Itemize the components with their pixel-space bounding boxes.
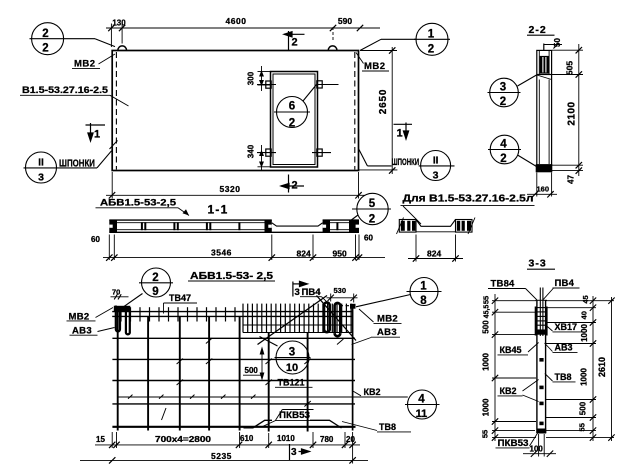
svg-text:2100: 2100 bbox=[567, 101, 578, 125]
svg-text:2: 2 bbox=[289, 118, 295, 130]
svg-text:Для В1.5-53.27.16-2.5л: Для В1.5-53.27.16-2.5л bbox=[403, 194, 534, 205]
svg-text:2: 2 bbox=[42, 43, 48, 55]
svg-text:1000: 1000 bbox=[482, 353, 491, 371]
svg-text:3: 3 bbox=[291, 447, 297, 458]
svg-text:3-3: 3-3 bbox=[529, 258, 547, 270]
svg-text:160: 160 bbox=[537, 185, 550, 194]
svg-text:2650: 2650 bbox=[378, 89, 389, 114]
svg-text:1000: 1000 bbox=[482, 398, 491, 416]
svg-text:ПКВ53: ПКВ53 bbox=[279, 410, 310, 420]
svg-text:11: 11 bbox=[416, 408, 428, 420]
svg-text:530: 530 bbox=[334, 286, 347, 295]
svg-text:55: 55 bbox=[480, 430, 489, 438]
svg-text:II: II bbox=[38, 158, 44, 169]
svg-text:950: 950 bbox=[333, 249, 347, 259]
svg-text:1-1: 1-1 bbox=[208, 203, 229, 217]
svg-text:100: 100 bbox=[530, 445, 544, 454]
svg-text:47: 47 bbox=[567, 175, 576, 184]
svg-text:1: 1 bbox=[94, 129, 100, 141]
svg-text:55: 55 bbox=[577, 423, 586, 431]
svg-text:8: 8 bbox=[420, 295, 427, 307]
svg-text:15: 15 bbox=[96, 435, 105, 444]
svg-text:2: 2 bbox=[152, 272, 158, 284]
svg-text:КВ2: КВ2 bbox=[364, 387, 381, 397]
svg-text:55: 55 bbox=[481, 296, 490, 304]
svg-text:45,5: 45,5 bbox=[483, 305, 490, 319]
svg-text:АВ3: АВ3 bbox=[555, 342, 573, 352]
svg-text:3: 3 bbox=[500, 82, 506, 94]
svg-text:4: 4 bbox=[500, 139, 507, 151]
svg-text:5: 5 bbox=[369, 198, 376, 210]
svg-text:1000: 1000 bbox=[580, 368, 589, 386]
svg-text:780: 780 bbox=[320, 435, 334, 444]
svg-text:ТВ47: ТВ47 bbox=[169, 293, 191, 303]
svg-text:1010: 1010 bbox=[277, 434, 295, 443]
svg-text:2610: 2610 bbox=[597, 357, 607, 377]
svg-text:ТВ121: ТВ121 bbox=[278, 378, 305, 388]
svg-text:АВ3: АВ3 bbox=[377, 327, 397, 338]
svg-text:2: 2 bbox=[42, 28, 48, 40]
svg-text:40: 40 bbox=[579, 311, 588, 319]
svg-text:КВ45: КВ45 bbox=[500, 345, 522, 355]
svg-text:824: 824 bbox=[427, 249, 441, 259]
svg-text:2: 2 bbox=[292, 180, 298, 192]
svg-text:1: 1 bbox=[428, 29, 435, 41]
svg-text:60: 60 bbox=[91, 235, 100, 244]
svg-text:4: 4 bbox=[418, 394, 425, 406]
svg-text:610: 610 bbox=[240, 434, 254, 443]
svg-text:МВ2: МВ2 bbox=[377, 314, 398, 325]
svg-text:2: 2 bbox=[428, 44, 434, 56]
svg-text:ТВ8: ТВ8 bbox=[555, 372, 572, 382]
svg-text:130: 130 bbox=[112, 19, 126, 28]
svg-text:ТВ8: ТВ8 bbox=[379, 422, 396, 432]
svg-text:1000: 1000 bbox=[580, 324, 589, 342]
svg-text:20: 20 bbox=[346, 435, 355, 444]
svg-text:340: 340 bbox=[247, 144, 256, 158]
svg-text:500: 500 bbox=[579, 401, 588, 415]
svg-text:60: 60 bbox=[364, 234, 373, 243]
svg-text:3: 3 bbox=[295, 287, 300, 298]
svg-text:ПКВ53: ПКВ53 bbox=[498, 438, 529, 448]
svg-text:70: 70 bbox=[112, 287, 120, 296]
svg-text:АБВ1.5-53- 2,5: АБВ1.5-53- 2,5 bbox=[190, 271, 274, 282]
svg-text:3: 3 bbox=[38, 172, 44, 184]
svg-text:ШПОНКИ: ШПОНКИ bbox=[392, 157, 420, 167]
svg-text:2: 2 bbox=[292, 37, 298, 49]
svg-text:II: II bbox=[433, 156, 439, 167]
svg-text:1: 1 bbox=[397, 128, 403, 140]
svg-text:3546: 3546 bbox=[211, 248, 232, 258]
svg-text:ПВ4: ПВ4 bbox=[555, 278, 575, 289]
svg-text:700х4=2800: 700х4=2800 bbox=[155, 435, 212, 444]
svg-text:5235: 5235 bbox=[211, 451, 232, 461]
svg-text:590: 590 bbox=[338, 16, 352, 26]
svg-text:2-2: 2-2 bbox=[529, 24, 547, 36]
svg-text:КВ2: КВ2 bbox=[500, 386, 517, 396]
svg-text:ПВ4: ПВ4 bbox=[302, 287, 321, 297]
svg-text:824: 824 bbox=[297, 249, 311, 259]
svg-text:2: 2 bbox=[500, 96, 506, 108]
svg-text:ТВ84: ТВ84 bbox=[491, 278, 516, 289]
svg-text:5320: 5320 bbox=[220, 184, 241, 194]
svg-text:505: 505 bbox=[564, 61, 574, 75]
svg-text:АБВ1.5-53-2,5: АБВ1.5-53-2,5 bbox=[100, 198, 177, 209]
svg-text:В1.5-53.27.16-2.5: В1.5-53.27.16-2.5 bbox=[22, 85, 109, 96]
svg-text:500: 500 bbox=[245, 366, 259, 375]
svg-text:300: 300 bbox=[247, 71, 256, 85]
svg-text:МВ2: МВ2 bbox=[364, 61, 386, 72]
svg-text:9: 9 bbox=[152, 286, 158, 298]
svg-text:45: 45 bbox=[581, 295, 590, 303]
svg-text:10: 10 bbox=[286, 362, 298, 374]
svg-text:ШПОНКИ: ШПОНКИ bbox=[59, 158, 95, 170]
svg-text:МВ2: МВ2 bbox=[74, 59, 96, 70]
svg-text:6: 6 bbox=[289, 101, 295, 113]
svg-text:500: 500 bbox=[482, 320, 491, 334]
svg-text:ХВ17: ХВ17 bbox=[555, 322, 578, 332]
svg-text:50: 50 bbox=[553, 38, 562, 47]
svg-text:2: 2 bbox=[369, 214, 375, 226]
svg-text:1: 1 bbox=[420, 281, 427, 293]
svg-text:3: 3 bbox=[433, 170, 439, 182]
svg-text:2: 2 bbox=[500, 153, 506, 165]
svg-text:4600: 4600 bbox=[226, 16, 247, 26]
svg-text:3: 3 bbox=[289, 347, 295, 359]
